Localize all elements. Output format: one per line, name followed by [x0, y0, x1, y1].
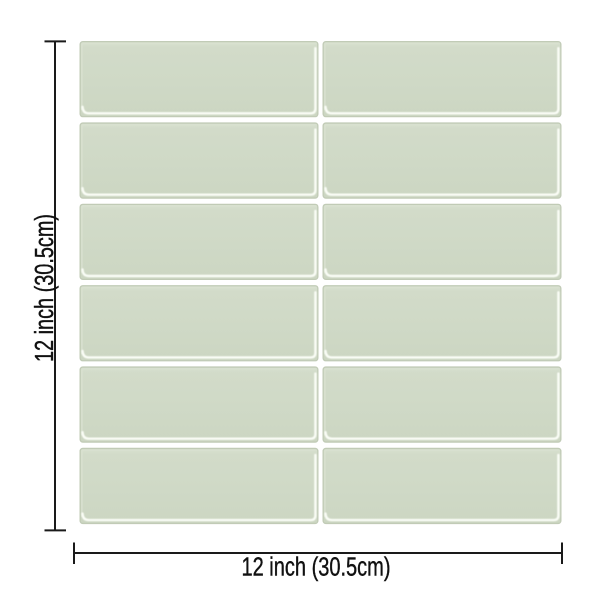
svg-text:12 inch (30.5cm): 12 inch (30.5cm): [242, 554, 391, 582]
svg-text:12 inch (30.5cm): 12 inch (30.5cm): [31, 214, 59, 362]
